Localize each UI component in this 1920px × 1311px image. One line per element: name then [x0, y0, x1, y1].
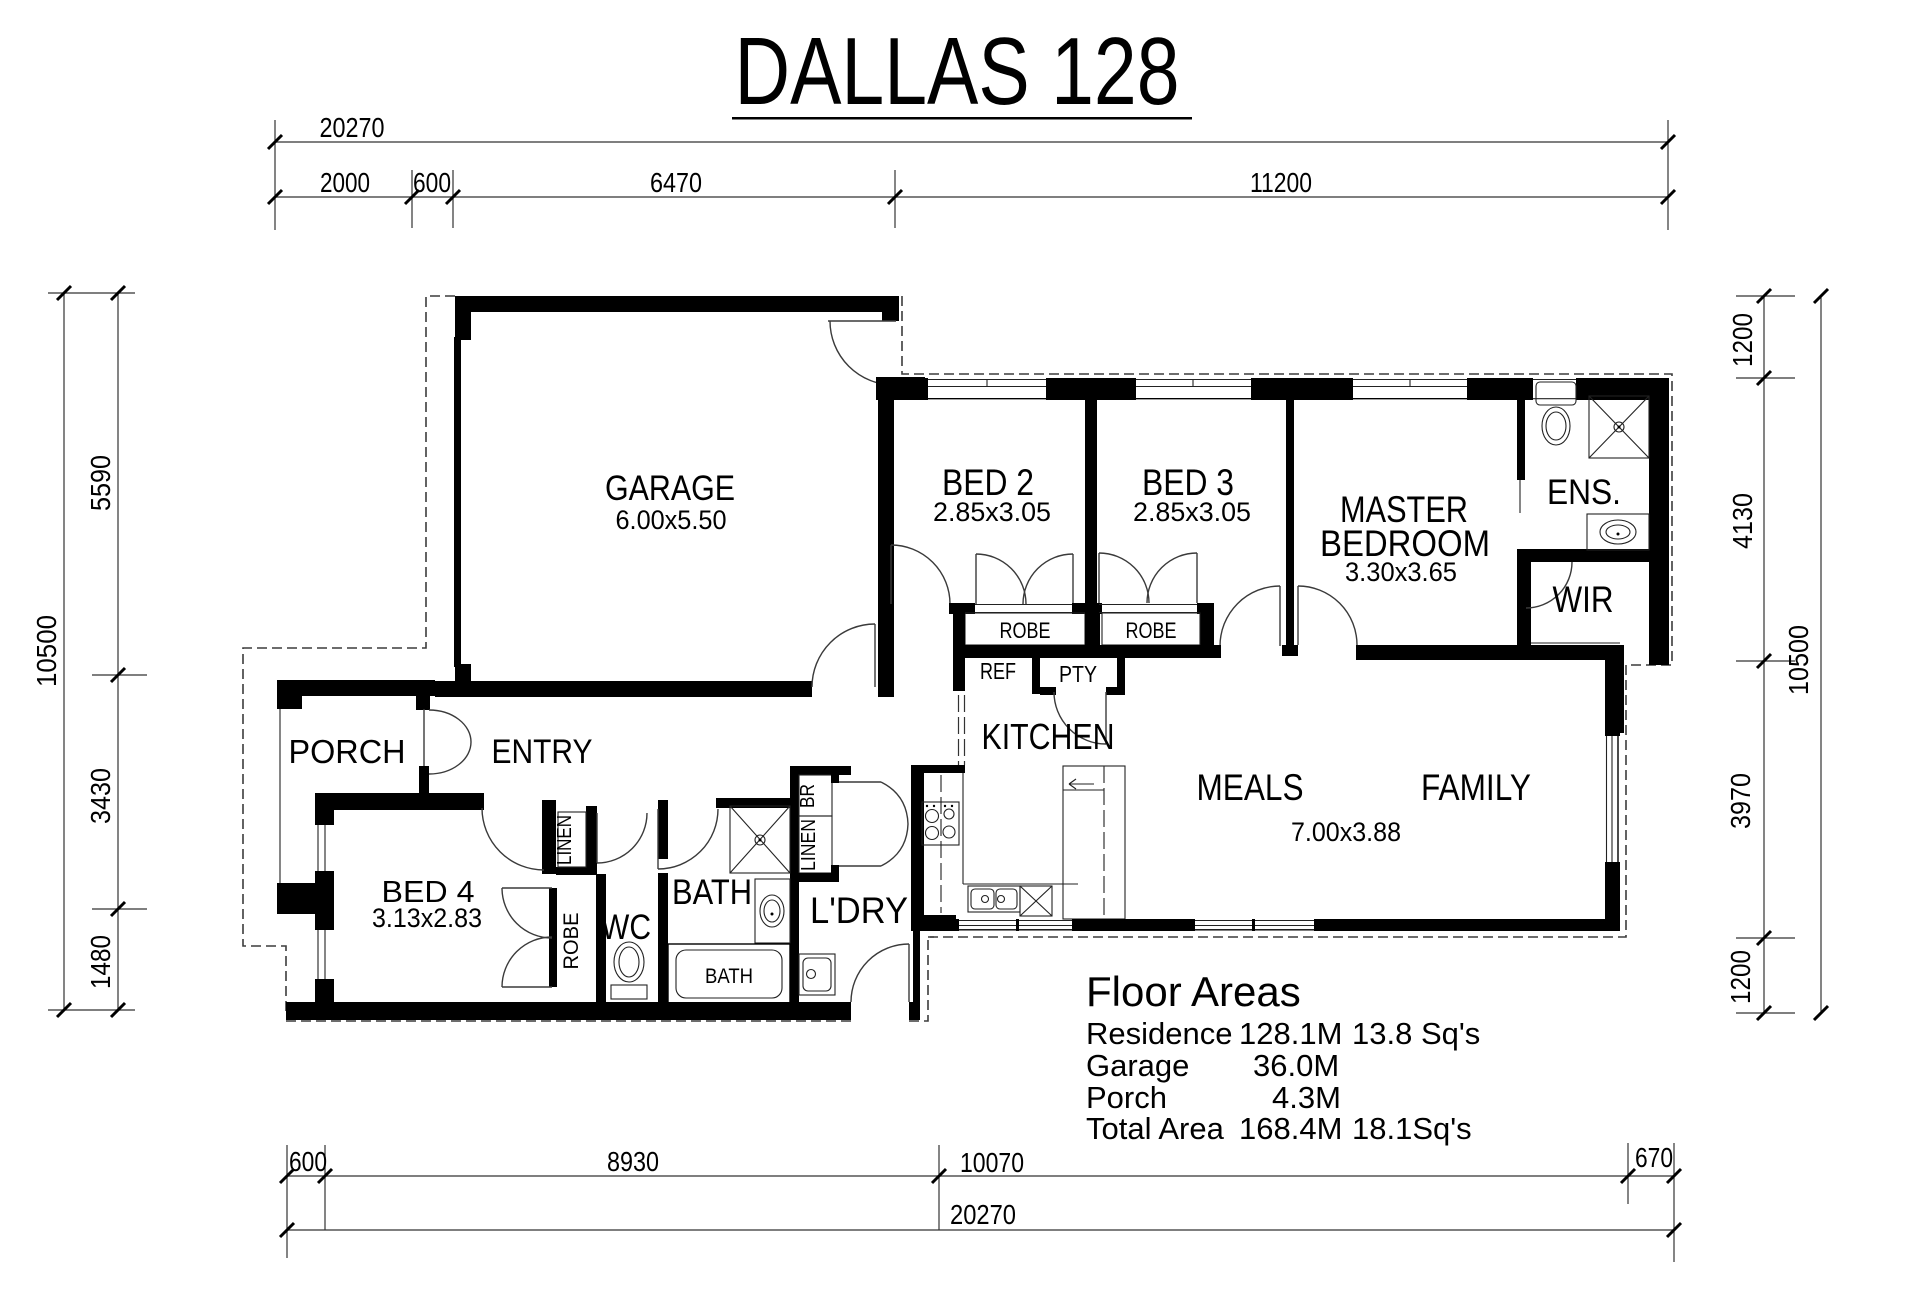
svg-text:168.4M: 168.4M	[1239, 1111, 1342, 1146]
svg-text:1480: 1480	[85, 935, 116, 989]
svg-text:PTY: PTY	[1059, 661, 1097, 687]
svg-text:Total Area: Total Area	[1086, 1111, 1225, 1146]
svg-text:10500: 10500	[31, 615, 62, 687]
svg-text:Porch: Porch	[1086, 1080, 1167, 1115]
svg-text:ENTRY: ENTRY	[492, 733, 593, 771]
svg-text:10500: 10500	[1783, 625, 1814, 695]
svg-text:10070: 10070	[960, 1147, 1024, 1178]
svg-text:20270: 20270	[320, 112, 385, 143]
svg-text:670: 670	[1635, 1142, 1673, 1173]
svg-text:600: 600	[413, 167, 451, 198]
svg-text:6.00x5.50: 6.00x5.50	[616, 505, 727, 535]
svg-text:36.0M: 36.0M	[1253, 1048, 1339, 1083]
svg-text:DALLAS 128: DALLAS 128	[735, 18, 1180, 125]
svg-text:Residence: Residence	[1086, 1016, 1232, 1051]
svg-text:20270: 20270	[950, 1199, 1016, 1230]
svg-text:3.13x2.83: 3.13x2.83	[372, 903, 482, 933]
svg-text:PORCH: PORCH	[289, 733, 406, 770]
svg-text:1200: 1200	[1727, 313, 1758, 367]
svg-text:18.1Sq's: 18.1Sq's	[1352, 1111, 1472, 1146]
svg-text:2.85x3.05: 2.85x3.05	[1133, 497, 1251, 527]
svg-text:KITCHEN: KITCHEN	[982, 716, 1115, 757]
svg-text:3.30x3.65: 3.30x3.65	[1345, 557, 1457, 587]
svg-text:5590: 5590	[85, 455, 116, 511]
svg-text:11200: 11200	[1250, 167, 1312, 198]
svg-text:ROBE: ROBE	[1126, 618, 1177, 643]
svg-text:2.85x3.05: 2.85x3.05	[933, 497, 1051, 527]
svg-text:GARAGE: GARAGE	[605, 469, 735, 508]
svg-text:3430: 3430	[85, 768, 116, 824]
svg-text:WIR: WIR	[1553, 579, 1614, 620]
svg-text:Floor Areas: Floor Areas	[1086, 968, 1301, 1015]
svg-text:BATH: BATH	[705, 965, 753, 988]
svg-text:ROBE: ROBE	[1000, 618, 1051, 643]
svg-text:13.8 Sq's: 13.8 Sq's	[1352, 1016, 1480, 1051]
svg-text:6470: 6470	[650, 167, 702, 198]
svg-text:3970: 3970	[1725, 773, 1756, 829]
svg-text:4130: 4130	[1727, 493, 1758, 549]
svg-text:L'DRY: L'DRY	[810, 890, 908, 931]
svg-text:ENS.: ENS.	[1547, 473, 1621, 512]
svg-text:2000: 2000	[320, 167, 370, 198]
svg-text:BR: BR	[797, 784, 819, 808]
svg-text:REF: REF	[980, 658, 1016, 684]
svg-text:ROBE: ROBE	[560, 913, 583, 970]
svg-text:LINEN: LINEN	[554, 815, 576, 865]
svg-text:4.3M: 4.3M	[1272, 1080, 1341, 1115]
svg-text:LINEN: LINEN	[798, 819, 820, 871]
svg-text:Garage: Garage	[1086, 1048, 1189, 1083]
svg-text:1200: 1200	[1725, 950, 1756, 1004]
svg-text:600: 600	[289, 1146, 327, 1177]
svg-text:7.00x3.88: 7.00x3.88	[1291, 817, 1401, 847]
svg-text:BATH: BATH	[672, 873, 752, 912]
svg-text:MEALS: MEALS	[1197, 767, 1304, 808]
svg-text:FAMILY: FAMILY	[1421, 767, 1531, 808]
svg-text:WC: WC	[601, 908, 651, 947]
svg-text:8930: 8930	[607, 1146, 659, 1177]
svg-text:128.1M: 128.1M	[1239, 1016, 1342, 1051]
